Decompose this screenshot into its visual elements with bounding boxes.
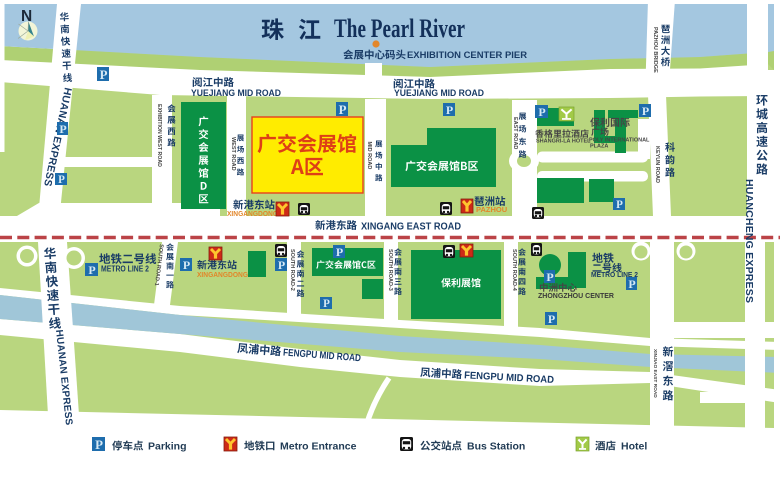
svg-text:P: P xyxy=(446,103,453,117)
svg-text:EAST ROAD: EAST ROAD xyxy=(512,117,518,149)
svg-text:P: P xyxy=(546,270,553,284)
svg-text:YUEJIANG MID ROAD: YUEJIANG MID ROAD xyxy=(191,88,281,99)
svg-text:P: P xyxy=(616,199,623,211)
svg-text:XINGANGDONG: XINGANGDONG xyxy=(227,209,278,218)
svg-text:Metro Entrance: Metro Entrance xyxy=(280,441,357,453)
svg-text:P: P xyxy=(628,277,635,291)
svg-text:P: P xyxy=(278,258,285,272)
svg-text:P: P xyxy=(88,263,95,277)
svg-text:SOUTH ROAD-2: SOUTH ROAD-2 xyxy=(289,249,295,291)
svg-text:PAZHOU: PAZHOU xyxy=(476,205,507,214)
svg-text:P: P xyxy=(336,245,343,259)
svg-text:P: P xyxy=(95,438,103,452)
svg-text:Hotel: Hotel xyxy=(621,441,647,453)
svg-text:P: P xyxy=(59,122,66,136)
svg-text:P: P xyxy=(323,298,330,310)
svg-text:HUANCHENG EXPRESS: HUANCHENG EXPRESS xyxy=(743,179,755,303)
svg-text:Bus Station: Bus Station xyxy=(467,441,525,453)
svg-text:METRO LINE 2: METRO LINE 2 xyxy=(101,265,149,274)
svg-text:Parking: Parking xyxy=(148,441,187,453)
svg-text:KEYUN ROAD: KEYUN ROAD xyxy=(654,146,660,183)
svg-text:SOUTH ROAD-4: SOUTH ROAD-4 xyxy=(511,249,517,292)
svg-text:P: P xyxy=(183,258,190,272)
svg-text:SOUTH ROAD-3: SOUTH ROAD-3 xyxy=(387,249,393,291)
svg-text:MID ROAD: MID ROAD xyxy=(366,142,372,170)
svg-text:P: P xyxy=(58,174,65,186)
svg-text:YUEJIANG MID ROAD: YUEJIANG MID ROAD xyxy=(394,88,484,99)
svg-text:XINGANG EAST ROAD: XINGANG EAST ROAD xyxy=(361,222,461,233)
svg-text:P: P xyxy=(548,312,555,326)
svg-text:P: P xyxy=(339,103,347,117)
svg-text:P: P xyxy=(642,104,649,118)
svg-text:WEST ROAD: WEST ROAD xyxy=(230,137,236,171)
svg-text:PAZHOU BRIDGE: PAZHOU BRIDGE xyxy=(652,27,658,73)
svg-text:P: P xyxy=(538,105,545,119)
svg-text:XINJIAO EAST ROAD: XINJIAO EAST ROAD xyxy=(652,349,658,398)
svg-text:P: P xyxy=(100,68,108,82)
svg-text:SHANGRI-LA HOTEL: SHANGRI-LA HOTEL xyxy=(536,139,591,145)
svg-text:PLAZA: PLAZA xyxy=(590,144,608,150)
svg-text:N: N xyxy=(21,8,32,25)
svg-text:EXHIBITION WEST ROAD: EXHIBITION WEST ROAD xyxy=(156,104,162,167)
svg-text:EXHIBITION CENTER PIER: EXHIBITION CENTER PIER xyxy=(407,50,527,61)
svg-text:ZHONGZHOU CENTER: ZHONGZHOU CENTER xyxy=(538,293,614,300)
svg-text:The Pearl River: The Pearl River xyxy=(334,14,465,43)
svg-text:XINGANGDONG: XINGANGDONG xyxy=(197,270,248,279)
